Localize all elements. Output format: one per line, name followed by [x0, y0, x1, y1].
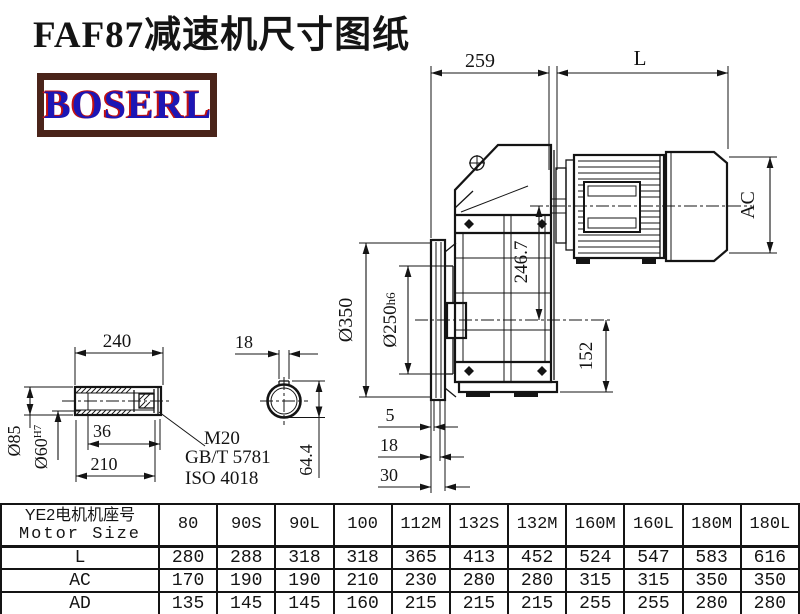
cell: 135	[159, 592, 217, 614]
dim-label-shaft-od: Ø85	[4, 426, 24, 457]
cell: 210	[334, 569, 392, 592]
cell: 230	[392, 569, 450, 592]
cell: 190	[217, 569, 275, 592]
cell: 145	[217, 592, 275, 614]
column-header: 180M	[683, 504, 741, 546]
cell: 280	[741, 592, 799, 614]
cell: 583	[683, 546, 741, 569]
column-header: 132S	[450, 504, 508, 546]
row-label: AD	[1, 592, 159, 614]
cell: 524	[566, 546, 624, 569]
dim-label-L: L	[634, 46, 647, 70]
label-std-gb: GB/T 5781	[185, 447, 271, 468]
cell: 315	[566, 569, 624, 592]
column-header: 112M	[392, 504, 450, 546]
dim-label-259: 259	[465, 50, 495, 72]
cell: 547	[624, 546, 682, 569]
cell: 280	[508, 569, 566, 592]
dim-label-AC: AC	[737, 191, 759, 219]
cell: 215	[392, 592, 450, 614]
label-bolt-m20: M20	[204, 428, 240, 449]
drawing-sheet: FAF87减速机尺寸图纸 BOSERL	[0, 0, 800, 614]
main-view-dimensions: 259 L AC 246.7 Ø350 Ø250h6 152 5 1	[335, 46, 777, 490]
row-label: L	[1, 546, 159, 569]
dim-label-5: 5	[386, 405, 395, 425]
column-header: 80	[159, 504, 217, 546]
dim-label-key-width: 18	[235, 332, 253, 352]
dim-label-key-depth: 64.4	[296, 444, 316, 476]
table-row-L: L 280 288 318 318 365 413 452 524 547 58…	[1, 546, 799, 569]
dim-label-152: 152	[576, 342, 597, 371]
cell: 280	[683, 592, 741, 614]
column-header: 90S	[217, 504, 275, 546]
dim-label-246-7: 246.7	[511, 241, 532, 284]
header-line1: YE2电机机座号	[2, 506, 158, 525]
cell: 215	[450, 592, 508, 614]
cell: 350	[741, 569, 799, 592]
cell: 255	[624, 592, 682, 614]
table-row-AD: AD 135 145 145 160 215 215 215 255 255 2…	[1, 592, 799, 614]
cell: 160	[334, 592, 392, 614]
cell: 255	[566, 592, 624, 614]
cell: 170	[159, 569, 217, 592]
column-header: 180L	[741, 504, 799, 546]
row-label: AC	[1, 569, 159, 592]
cell: 315	[624, 569, 682, 592]
cell: 365	[392, 546, 450, 569]
cell: 145	[275, 592, 333, 614]
dim-label-240: 240	[103, 331, 132, 352]
dim-label-36: 36	[93, 421, 111, 441]
cell: 280	[450, 569, 508, 592]
cell: 318	[275, 546, 333, 569]
cell: 616	[741, 546, 799, 569]
column-header: 160M	[566, 504, 624, 546]
reducer-side-view	[431, 145, 557, 493]
column-header: 90L	[275, 504, 333, 546]
dim-label-flange-od: Ø350	[335, 298, 357, 342]
shaft-detail-view: 240 Ø85 Ø60H7 36 210 M20 GB/T 5781 ISO 4…	[4, 331, 271, 489]
dim-label-30: 30	[380, 465, 398, 485]
column-header: 100	[334, 504, 392, 546]
cell: 413	[450, 546, 508, 569]
table-row-AC: AC 170 190 190 210 230 280 280 315 315 3…	[1, 569, 799, 592]
header-line2: Motor Size	[2, 525, 158, 544]
cell: 350	[683, 569, 741, 592]
motor-side-view	[551, 152, 727, 264]
table-header-row: YE2电机机座号 Motor Size 80 90S 90L 100 112M …	[1, 504, 799, 546]
label-std-iso: ISO 4018	[185, 468, 258, 489]
motor-size-header: YE2电机机座号 Motor Size	[1, 504, 159, 546]
cell: 318	[334, 546, 392, 569]
cell: 215	[508, 592, 566, 614]
dim-label-spigot: Ø250h6	[380, 292, 401, 348]
motor-size-table: YE2电机机座号 Motor Size 80 90S 90L 100 112M …	[0, 503, 800, 614]
cell: 452	[508, 546, 566, 569]
column-header: 132M	[508, 504, 566, 546]
cell: 288	[217, 546, 275, 569]
dim-label-bore: Ø60H7	[31, 424, 51, 469]
cell: 190	[275, 569, 333, 592]
cell: 280	[159, 546, 217, 569]
dim-label-18: 18	[380, 435, 398, 455]
column-header: 160L	[624, 504, 682, 546]
dim-label-210: 210	[91, 454, 118, 474]
